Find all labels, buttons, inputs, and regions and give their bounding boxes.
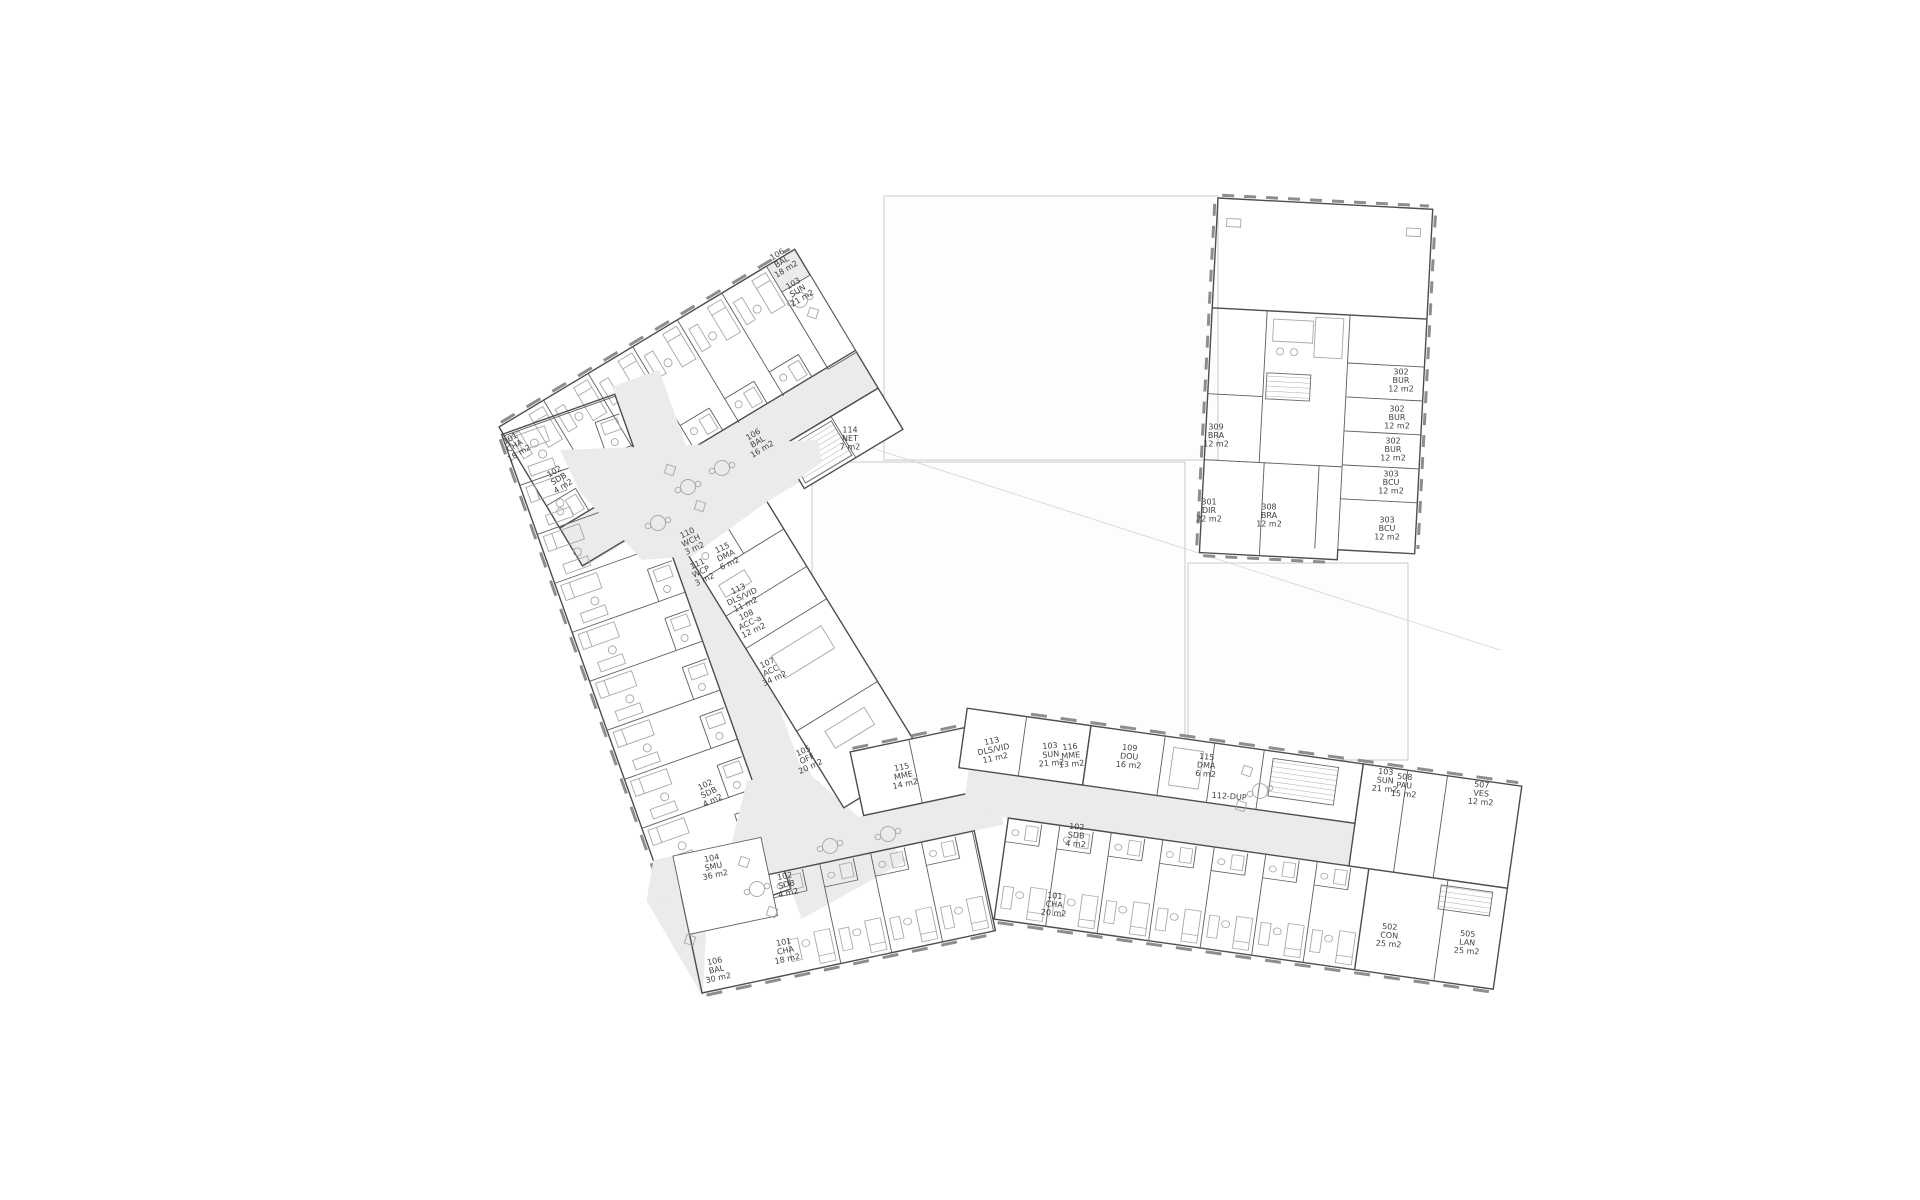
- room-label: 308BRA12 m2: [1256, 502, 1282, 528]
- windows-east-right: [1418, 215, 1435, 549]
- windows-east-top: [1222, 195, 1429, 206]
- svg-text:302BUR12 m2: 302BUR12 m2: [1380, 436, 1406, 462]
- svg-text:308BRA12 m2: 308BRA12 m2: [1256, 502, 1282, 528]
- wing-south-right: [938, 705, 1522, 992]
- lift-shaft: [1314, 317, 1344, 358]
- stairs-east-block: [1266, 373, 1311, 401]
- room-label: 102SDB4 m2: [1065, 822, 1087, 850]
- room-label: 303BCU12 m2: [1378, 469, 1404, 495]
- floor-plan-canvas: 101CHA18 m2102SDB4 m2106BAL18 m2103SUN21…: [0, 0, 1920, 1200]
- wc-block: [1273, 319, 1314, 343]
- room-label: 114NET7 m2: [840, 425, 861, 451]
- room-label: 115DMA6 m2: [1195, 752, 1217, 780]
- floor-plan-svg: 101CHA18 m2102SDB4 m2106BAL18 m2103SUN21…: [0, 0, 1920, 1200]
- svg-text:302BUR12 m2: 302BUR12 m2: [1384, 404, 1410, 430]
- room-label: 302BUR12 m2: [1384, 404, 1410, 430]
- svg-text:302BUR12 m2: 302BUR12 m2: [1388, 367, 1414, 393]
- room-label: 303BCU12 m2: [1374, 515, 1400, 541]
- room-label: 302BUR12 m2: [1380, 436, 1406, 462]
- svg-text:114NET7 m2: 114NET7 m2: [840, 425, 861, 451]
- rooms-sun-pau-ves: [1349, 764, 1522, 888]
- svg-text:102SDB4 m2: 102SDB4 m2: [1065, 822, 1087, 850]
- room-label: 302BUR12 m2: [1388, 367, 1414, 393]
- svg-text:115DMA6 m2: 115DMA6 m2: [1195, 752, 1217, 780]
- svg-text:303BCU12 m2: 303BCU12 m2: [1374, 515, 1400, 541]
- svg-text:303BCU12 m2: 303BCU12 m2: [1378, 469, 1404, 495]
- courtyard-north: [884, 196, 1218, 460]
- courtyard-east: [1188, 563, 1408, 760]
